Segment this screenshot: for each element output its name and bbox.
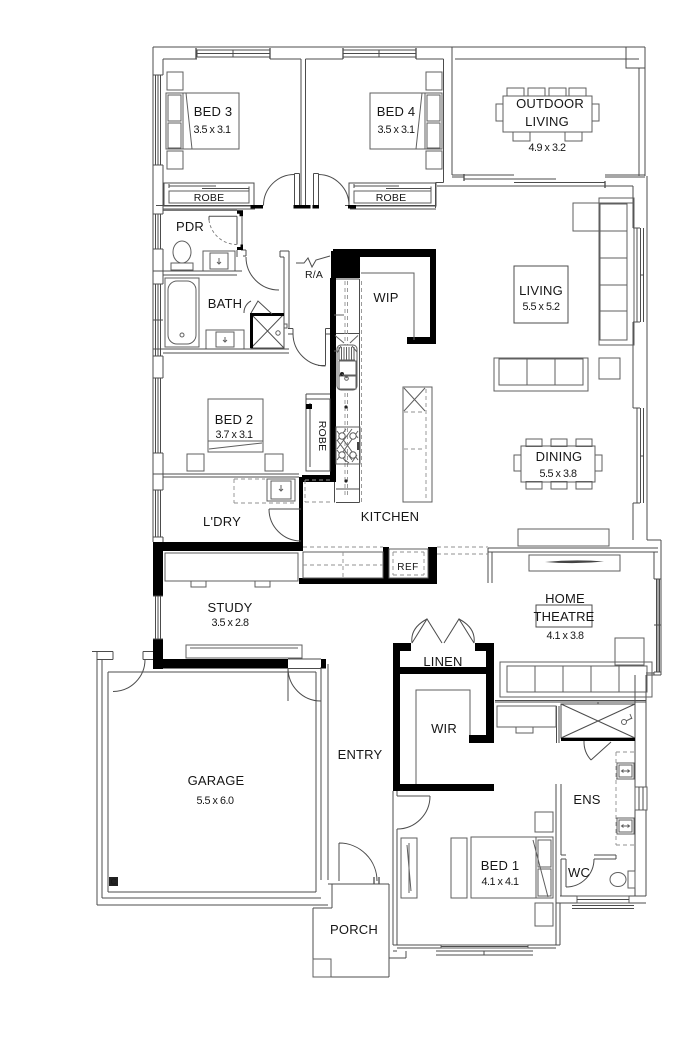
svg-text:3.5 x 2.8: 3.5 x 2.8 — [212, 617, 249, 629]
svg-text:ROBE: ROBE — [194, 192, 225, 204]
svg-text:STUDY: STUDY — [207, 600, 252, 615]
svg-text:BED 3: BED 3 — [194, 104, 233, 119]
svg-text:BED 2: BED 2 — [215, 412, 254, 427]
svg-text:R/A: R/A — [305, 269, 323, 281]
svg-text:WC: WC — [568, 865, 590, 880]
svg-text:HOME: HOME — [545, 591, 585, 606]
svg-text:5.5 x 3.8: 5.5 x 3.8 — [540, 468, 577, 480]
svg-text:WIR: WIR — [431, 721, 457, 736]
svg-text:BED 4: BED 4 — [377, 104, 416, 119]
svg-text:3.5 x 3.1: 3.5 x 3.1 — [194, 124, 231, 136]
svg-text:LIVING: LIVING — [519, 283, 563, 298]
svg-text:5.5 x 5.2: 5.5 x 5.2 — [523, 301, 560, 313]
svg-text:THEATRE: THEATRE — [533, 609, 594, 624]
svg-text:ROBE: ROBE — [316, 421, 328, 452]
svg-text:BATH: BATH — [208, 296, 243, 311]
svg-text:WIP: WIP — [373, 290, 398, 305]
svg-text:3.7 x 3.1: 3.7 x 3.1 — [216, 429, 253, 441]
svg-text:4.1 x 4.1: 4.1 x 4.1 — [482, 876, 519, 888]
svg-text:ENTRY: ENTRY — [338, 747, 383, 762]
svg-text:4.1 x 3.8: 4.1 x 3.8 — [547, 630, 584, 642]
svg-text:LIVING: LIVING — [525, 114, 569, 129]
svg-text:4.9 x 3.2: 4.9 x 3.2 — [529, 142, 566, 154]
svg-text:L'DRY: L'DRY — [203, 514, 241, 529]
svg-text:REF: REF — [397, 562, 419, 573]
svg-text:3.5 x 3.1: 3.5 x 3.1 — [378, 124, 415, 136]
svg-text:PDR: PDR — [176, 219, 204, 234]
svg-text:GARAGE: GARAGE — [188, 773, 245, 788]
svg-text:ROBE: ROBE — [376, 192, 407, 204]
svg-text:5.5 x 6.0: 5.5 x 6.0 — [197, 795, 234, 807]
svg-text:DINING: DINING — [536, 449, 583, 464]
svg-text:KITCHEN: KITCHEN — [361, 509, 419, 524]
svg-text:ENS: ENS — [573, 792, 600, 807]
svg-text:BED 1: BED 1 — [481, 858, 520, 873]
svg-text:OUTDOOR: OUTDOOR — [516, 96, 584, 111]
svg-text:LINEN: LINEN — [423, 654, 462, 669]
svg-text:PORCH: PORCH — [330, 922, 378, 937]
svg-text:C: C — [111, 878, 117, 887]
